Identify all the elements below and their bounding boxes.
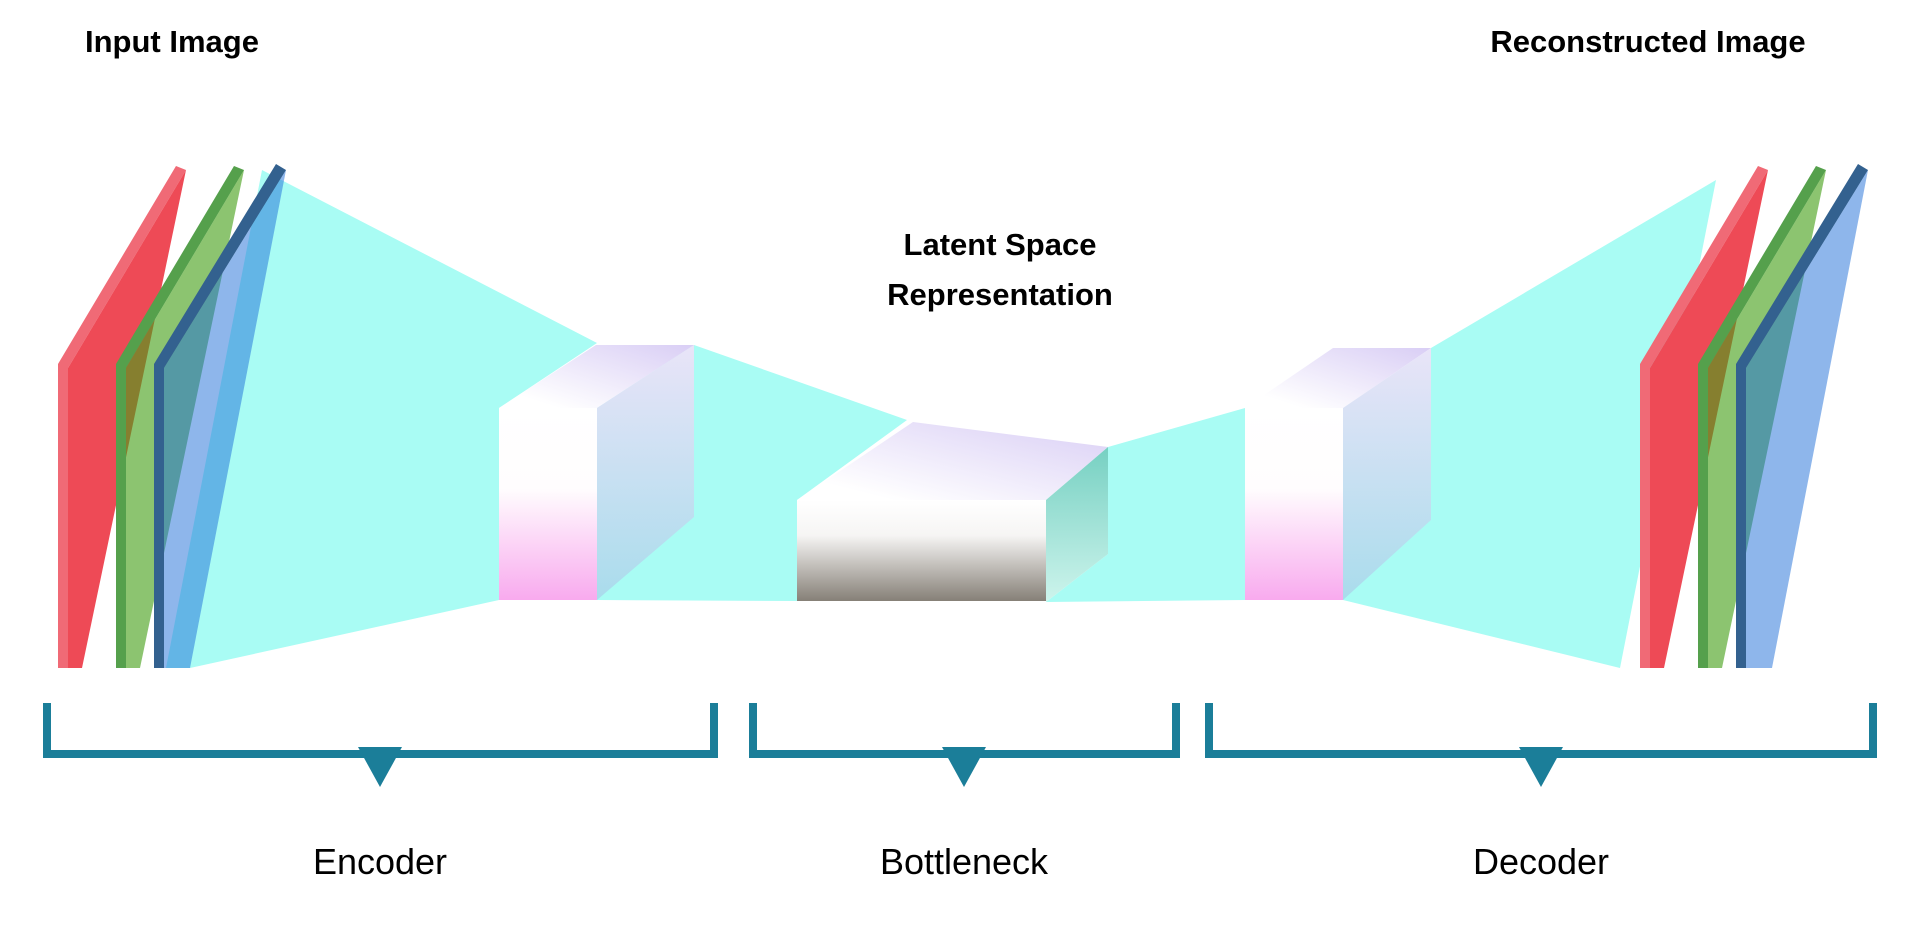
reconstructed-image-label: Reconstructed Image <box>1490 24 1805 59</box>
encoder-bracket <box>43 703 718 787</box>
encoder-bracket-arrow-icon <box>358 747 402 787</box>
input-image-label: Input Image <box>85 24 259 59</box>
decoder-label: Decoder <box>1473 841 1609 882</box>
decoder-box-front-face <box>1245 408 1343 600</box>
diagram-canvas: Input Image Reconstructed Image Latent S… <box>0 0 1911 930</box>
encoder-label: Encoder <box>313 841 447 882</box>
bottleneck-bracket <box>749 703 1180 787</box>
bottleneck-bracket-arrow-icon <box>942 747 986 787</box>
bottleneck-bracket-right-tick <box>1172 703 1180 758</box>
encoder-bracket-right-tick <box>710 703 718 758</box>
latent-space-label-line1: Latent Space <box>904 227 1097 262</box>
latent-space-label-line2: Representation <box>887 277 1113 312</box>
encoder-bracket-left-tick <box>43 703 51 758</box>
decoder-bracket-right-tick <box>1869 703 1877 758</box>
decoder-bracket-arrow-icon <box>1519 747 1563 787</box>
encoder-box-front-face <box>499 408 597 600</box>
autoencoder-architecture-diagram: Input Image Reconstructed Image Latent S… <box>0 0 1911 930</box>
bottleneck-front-face <box>797 500 1046 601</box>
decoder-bracket-left-tick <box>1205 703 1213 758</box>
bottleneck-label: Bottleneck <box>880 841 1049 882</box>
bottleneck-bracket-left-tick <box>749 703 757 758</box>
decoder-bracket <box>1205 703 1877 787</box>
